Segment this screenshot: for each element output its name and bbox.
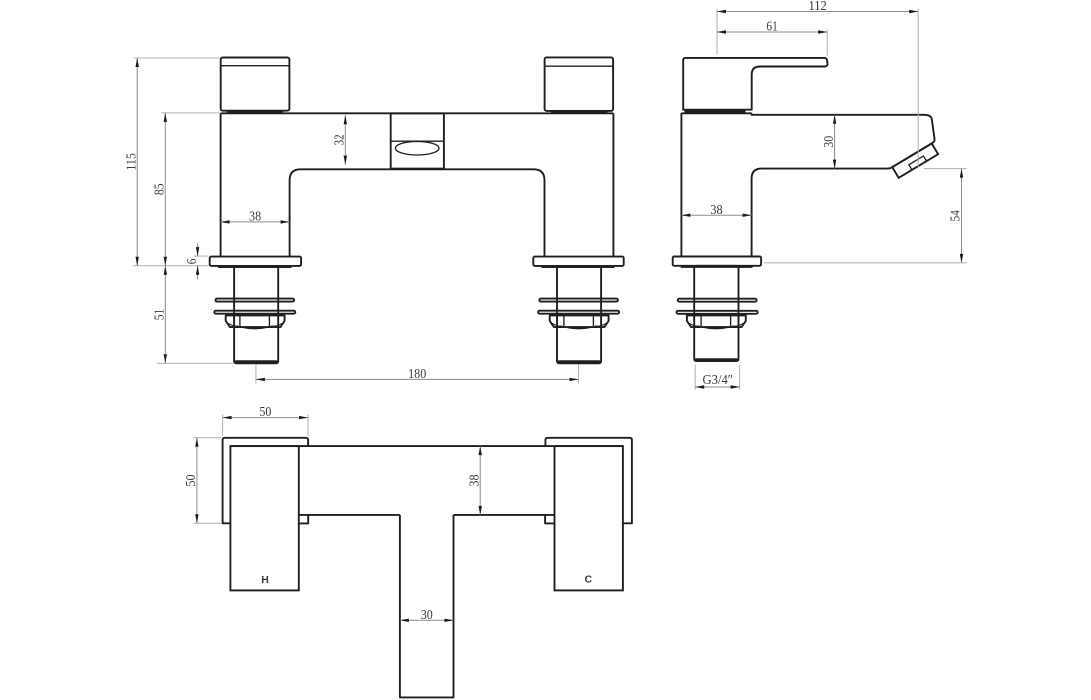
svg-text:G3/4″: G3/4″ <box>703 372 734 387</box>
svg-text:54: 54 <box>949 210 964 221</box>
svg-text:180: 180 <box>408 367 426 382</box>
svg-text:32: 32 <box>332 134 347 145</box>
svg-text:61: 61 <box>766 20 777 35</box>
svg-text:112: 112 <box>808 0 826 14</box>
svg-text:30: 30 <box>421 608 433 623</box>
svg-text:51: 51 <box>153 309 168 321</box>
svg-text:C: C <box>585 574 593 586</box>
svg-text:38: 38 <box>710 203 722 218</box>
svg-text:50: 50 <box>184 475 199 487</box>
svg-text:85: 85 <box>153 184 168 196</box>
svg-text:30: 30 <box>822 136 837 148</box>
svg-text:38: 38 <box>249 210 261 225</box>
svg-text:50: 50 <box>259 405 271 420</box>
svg-text:6: 6 <box>185 259 200 265</box>
svg-text:115: 115 <box>124 153 139 171</box>
svg-text:H: H <box>261 574 269 586</box>
svg-text:38: 38 <box>467 474 482 486</box>
